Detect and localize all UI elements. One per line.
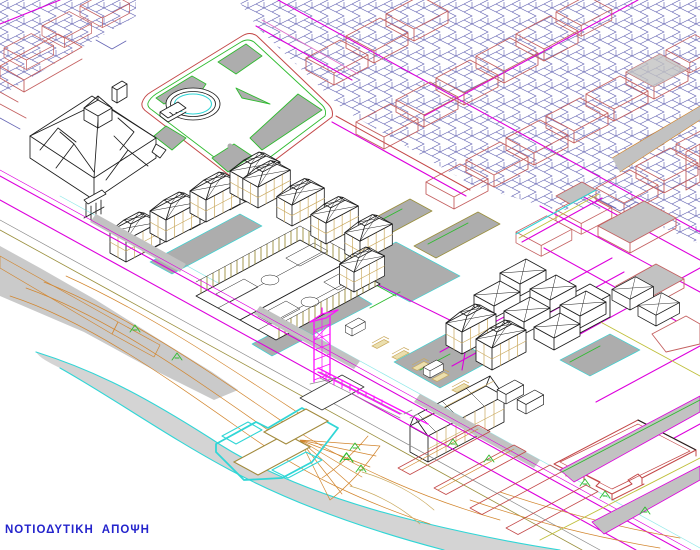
- axonometric-city-drawing: [0, 0, 700, 550]
- church-building: [30, 96, 166, 220]
- city-blocks-northwest: [0, 0, 136, 129]
- south-hall-building: [410, 376, 544, 462]
- pier-deck: [216, 375, 364, 480]
- view-caption-text: ΝΟΤΙΟΔΥΤΙΚΗ ΑΠΟΨΗ: [5, 524, 150, 536]
- park-kiosk: [112, 81, 127, 103]
- drawing-sheet: ΝΟΤΙΟΔΥΤΙΚΗ ΑΠΟΨΗ: [0, 0, 700, 550]
- vegetation-marks: [130, 325, 650, 514]
